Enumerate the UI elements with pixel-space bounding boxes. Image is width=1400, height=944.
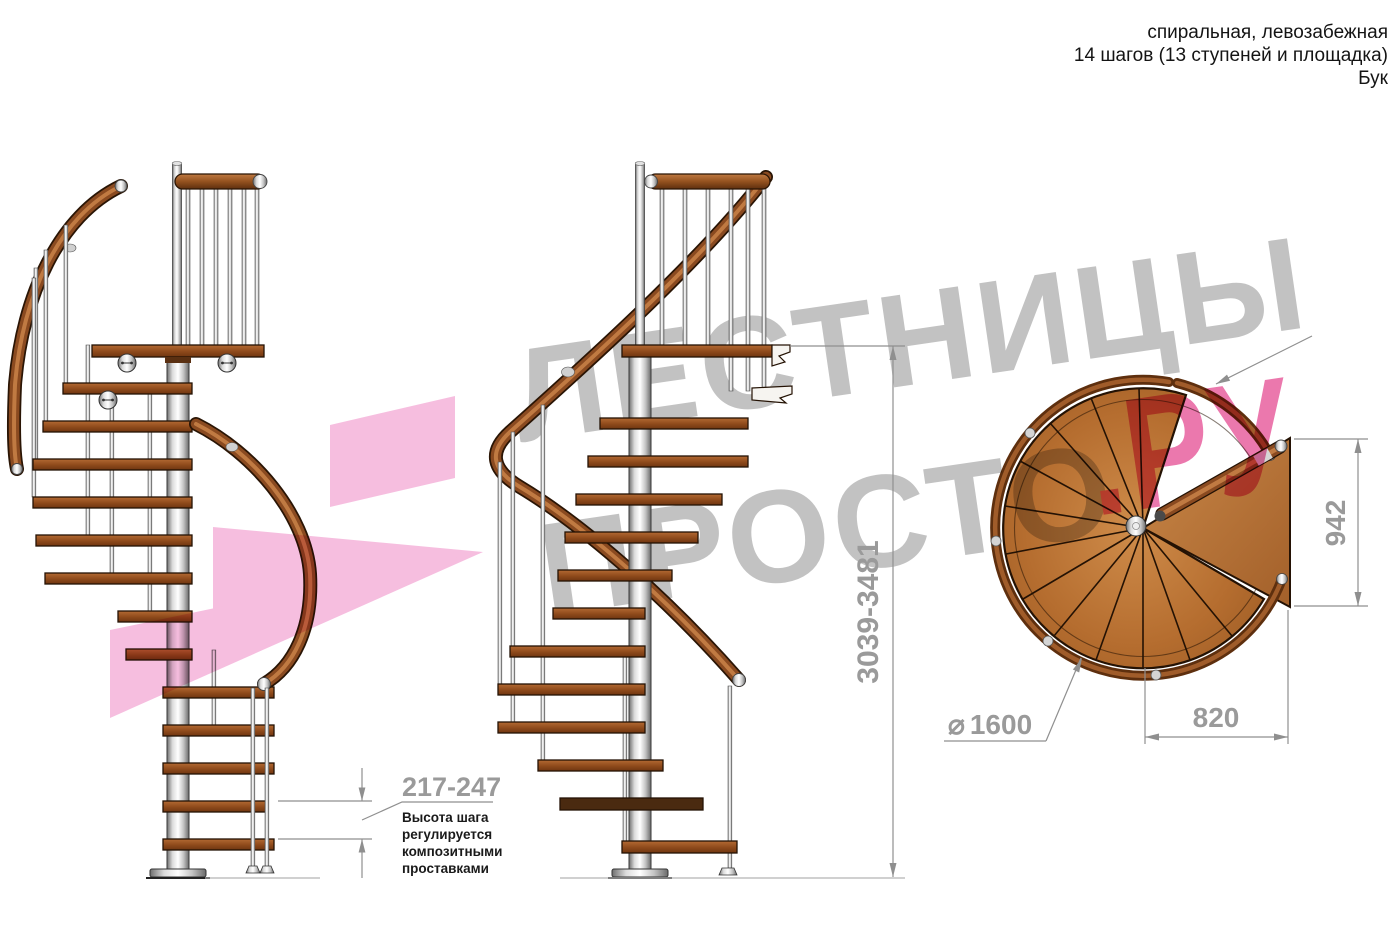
header-line2: 14 шагов (13 ступеней и площадка) <box>1074 45 1388 66</box>
base-flange <box>612 869 668 877</box>
step <box>565 532 698 543</box>
rail-end-cap <box>645 175 658 188</box>
step <box>33 497 192 508</box>
step <box>622 841 737 853</box>
diameter-symbol: ⌀ <box>948 709 965 740</box>
watermark-suffix: .РУ <box>1074 343 1306 550</box>
post-foot <box>719 868 737 875</box>
note-line1: Высота шага <box>402 810 489 825</box>
header-line3: Бук <box>1358 68 1389 89</box>
staircase-drawing: ЛЕСТНИЦЫ ПРОСТО .РУ <box>0 0 1400 944</box>
dim-diameter-label: ⌀1600 <box>948 709 1032 740</box>
step <box>588 456 748 467</box>
dim-landing-depth-label: 820 <box>1193 702 1240 733</box>
step <box>510 646 645 657</box>
platform-board <box>622 345 772 357</box>
dim-landing-width-label: 942 <box>1320 500 1351 547</box>
note-line4: проставками <box>402 861 489 876</box>
step <box>560 798 703 810</box>
rail-end-cap <box>115 180 127 192</box>
step <box>498 684 645 695</box>
platform-handrail <box>175 174 265 189</box>
step <box>498 722 645 733</box>
step <box>558 570 672 581</box>
base-flange <box>150 869 206 877</box>
step <box>553 608 645 619</box>
platform-handrail <box>648 174 770 189</box>
step <box>163 839 274 850</box>
rail-end-cap <box>733 674 746 687</box>
step <box>36 535 192 546</box>
step <box>43 421 192 432</box>
diameter-value: 1600 <box>970 709 1032 740</box>
platform-board <box>92 345 264 357</box>
step <box>163 725 274 736</box>
step <box>33 459 192 470</box>
step <box>538 760 663 771</box>
dim-total-height-label: 3039-3481 <box>852 540 885 683</box>
note-line3: композитными <box>402 844 502 859</box>
step <box>576 494 722 505</box>
step <box>63 383 192 394</box>
rail-end-cap <box>1277 574 1288 585</box>
step <box>163 763 274 774</box>
step <box>45 573 192 584</box>
rail-end-cap <box>12 464 23 475</box>
rail-end-cap <box>253 175 267 189</box>
step <box>163 687 274 698</box>
dim-step-height-label: 217-247 <box>402 772 501 802</box>
drawing-page: ЛЕСТНИЦЫ ПРОСТО .РУ <box>0 0 1400 944</box>
note-line2: регулируется <box>402 827 492 842</box>
header-line1: спиральная, левозабежная <box>1147 22 1388 43</box>
step <box>600 418 748 429</box>
